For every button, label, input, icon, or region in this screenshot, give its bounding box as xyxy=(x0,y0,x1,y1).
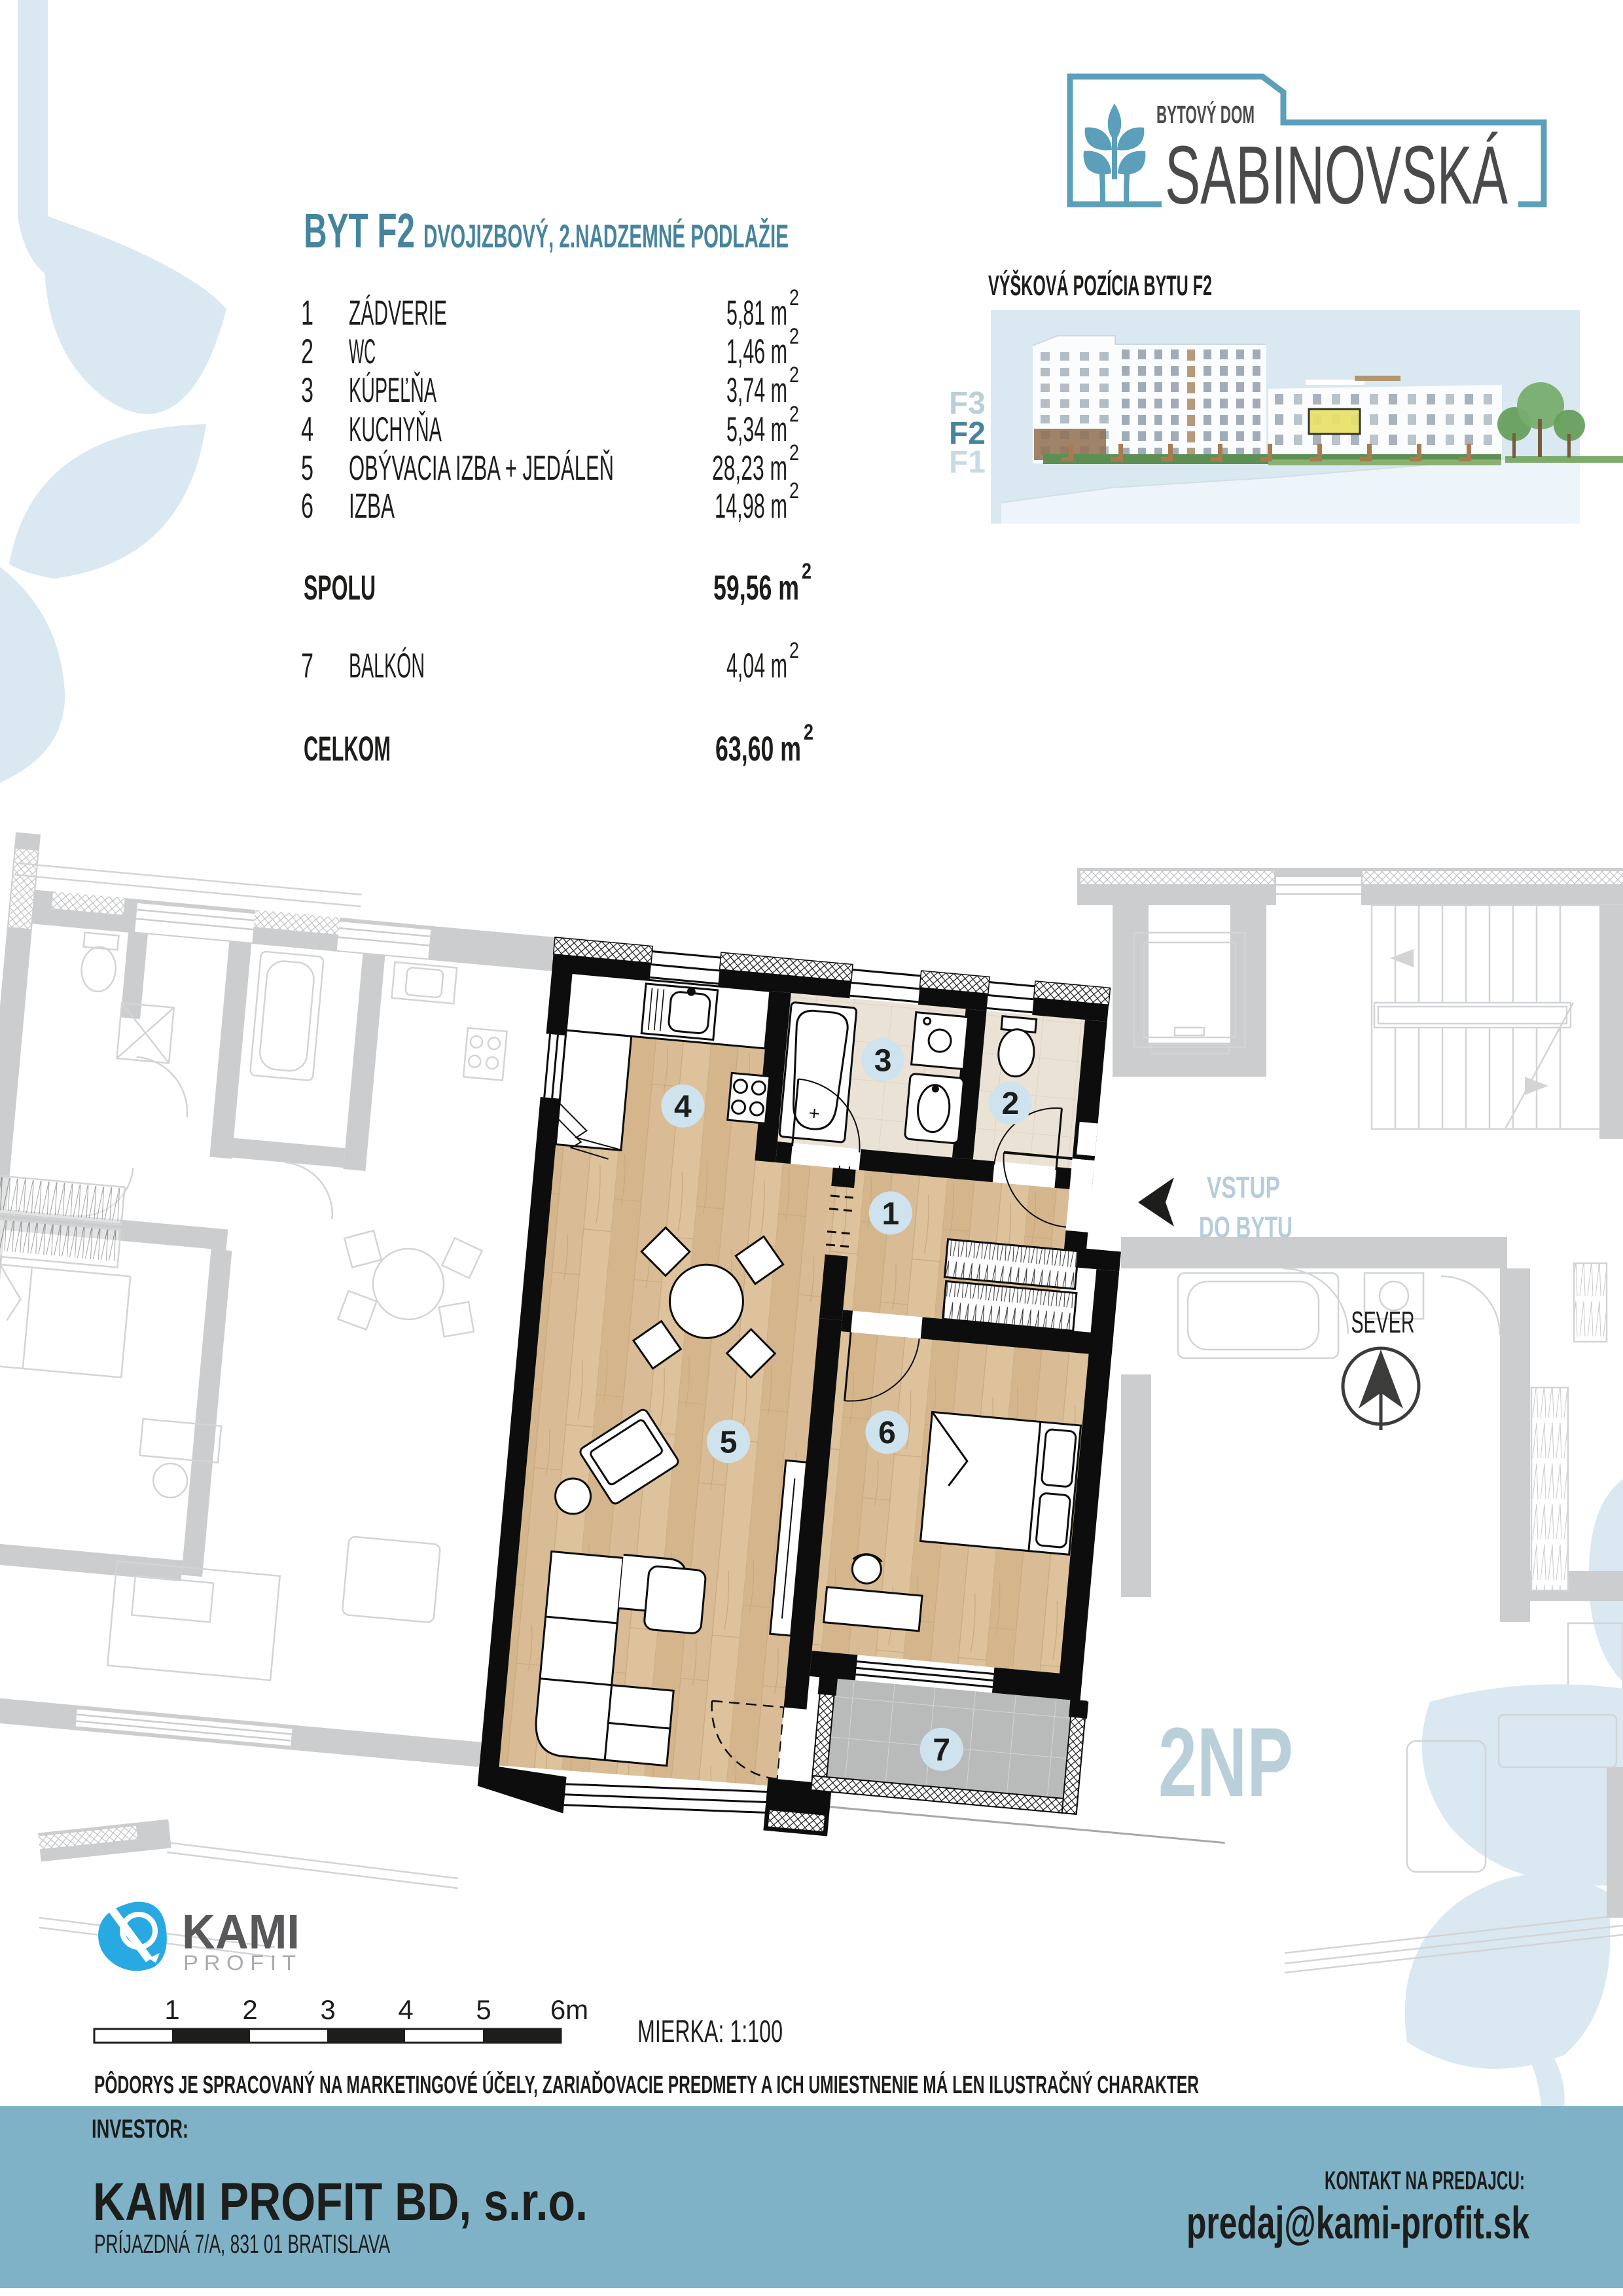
svg-text:KÚPEĽŇA: KÚPEĽŇA xyxy=(349,371,437,410)
svg-text:BYTOVÝ DOM: BYTOVÝ DOM xyxy=(1156,100,1255,129)
svg-text:14,98 m: 14,98 m xyxy=(715,487,787,526)
svg-text:6: 6 xyxy=(301,487,313,526)
svg-text:4: 4 xyxy=(301,410,313,449)
svg-text:DVOJIZBOVÝ, 2.NADZEMNÉ PODLAŽI: DVOJIZBOVÝ, 2.NADZEMNÉ PODLAŽIE xyxy=(423,218,789,255)
svg-text:2: 2 xyxy=(789,324,799,349)
svg-text:WC: WC xyxy=(349,332,376,371)
svg-text:SPOLU: SPOLU xyxy=(304,569,376,607)
svg-text:2: 2 xyxy=(802,559,811,584)
svg-text:6m: 6m xyxy=(550,1994,588,2025)
svg-text:2NP: 2NP xyxy=(1158,1707,1293,1817)
svg-text:4: 4 xyxy=(674,1090,692,1124)
svg-text:PÔDORYS JE SPRACOVANÝ NA MARKE: PÔDORYS JE SPRACOVANÝ NA MARKETINGOVÉ ÚČ… xyxy=(94,2070,1199,2099)
svg-text:2: 2 xyxy=(789,440,799,465)
svg-text:59,56 m: 59,56 m xyxy=(713,569,799,607)
svg-text:predaj@kami-profit.sk: predaj@kami-profit.sk xyxy=(1186,2197,1529,2248)
svg-text:7: 7 xyxy=(301,647,313,685)
svg-text:3: 3 xyxy=(320,1994,335,2025)
svg-text:PRÍJAZDNÁ 7/A, 831 01 BRATISLA: PRÍJAZDNÁ 7/A, 831 01 BRATISLAVA xyxy=(94,2229,390,2259)
svg-text:KAMI PROFIT BD, s.r.o.: KAMI PROFIT BD, s.r.o. xyxy=(93,2172,588,2232)
svg-text:6: 6 xyxy=(878,1416,896,1450)
svg-text:INVESTOR:: INVESTOR: xyxy=(92,2115,188,2144)
svg-text:BALKÓN: BALKÓN xyxy=(349,647,425,685)
svg-text:5: 5 xyxy=(720,1425,738,1460)
svg-text:5: 5 xyxy=(476,1994,491,2025)
svg-text:7: 7 xyxy=(933,1733,950,1768)
svg-text:4: 4 xyxy=(398,1994,413,2025)
svg-text:1: 1 xyxy=(164,1994,179,2025)
svg-text:DO BYTU: DO BYTU xyxy=(1199,1210,1293,1244)
svg-text:2: 2 xyxy=(804,720,813,745)
svg-text:ZÁDVERIE: ZÁDVERIE xyxy=(349,294,447,332)
svg-text:1: 1 xyxy=(301,294,313,332)
svg-text:KONTAKT NA PREDAJCU:: KONTAKT NA PREDAJCU: xyxy=(1325,2166,1525,2195)
svg-text:4,04 m: 4,04 m xyxy=(726,647,787,685)
svg-text:2: 2 xyxy=(242,1994,257,2025)
svg-text:BYT F2: BYT F2 xyxy=(304,204,415,258)
svg-text:3,74 m: 3,74 m xyxy=(726,371,787,410)
svg-text:2: 2 xyxy=(789,478,799,503)
svg-text:2: 2 xyxy=(789,402,799,427)
svg-text:VSTUP: VSTUP xyxy=(1207,1170,1280,1204)
svg-text:VÝŠKOVÁ POZÍCIA BYTU F2: VÝŠKOVÁ POZÍCIA BYTU F2 xyxy=(988,268,1212,302)
svg-text:MIERKA: 1:100: MIERKA: 1:100 xyxy=(637,2015,783,2049)
svg-text:3: 3 xyxy=(301,371,313,410)
svg-text:SEVER: SEVER xyxy=(1351,1305,1415,1339)
svg-text:F1: F1 xyxy=(949,445,986,480)
svg-text:28,23 m: 28,23 m xyxy=(712,449,787,488)
svg-text:P R O F I T: P R O F I T xyxy=(183,1951,296,1975)
svg-text:SABINOVSKÁ: SABINOVSKÁ xyxy=(1165,129,1508,221)
svg-text:2: 2 xyxy=(1002,1086,1020,1121)
svg-text:1,46 m: 1,46 m xyxy=(726,332,787,371)
svg-text:OBÝVACIA IZBA + JEDÁLEŇ: OBÝVACIA IZBA + JEDÁLEŇ xyxy=(349,449,614,488)
svg-text:5,34 m: 5,34 m xyxy=(726,410,787,449)
svg-text:2: 2 xyxy=(789,285,799,310)
svg-text:63,60 m: 63,60 m xyxy=(715,730,801,768)
svg-text:IZBA: IZBA xyxy=(349,487,395,526)
svg-text:KUCHYŇA: KUCHYŇA xyxy=(349,410,442,449)
svg-text:2: 2 xyxy=(301,332,313,371)
svg-text:2: 2 xyxy=(789,363,799,387)
svg-text:5: 5 xyxy=(301,449,313,488)
svg-text:5,81 m: 5,81 m xyxy=(726,294,787,332)
svg-text:2: 2 xyxy=(789,638,799,663)
svg-text:3: 3 xyxy=(874,1043,892,1078)
svg-text:1: 1 xyxy=(882,1196,900,1231)
svg-text:CELKOM: CELKOM xyxy=(304,730,391,768)
